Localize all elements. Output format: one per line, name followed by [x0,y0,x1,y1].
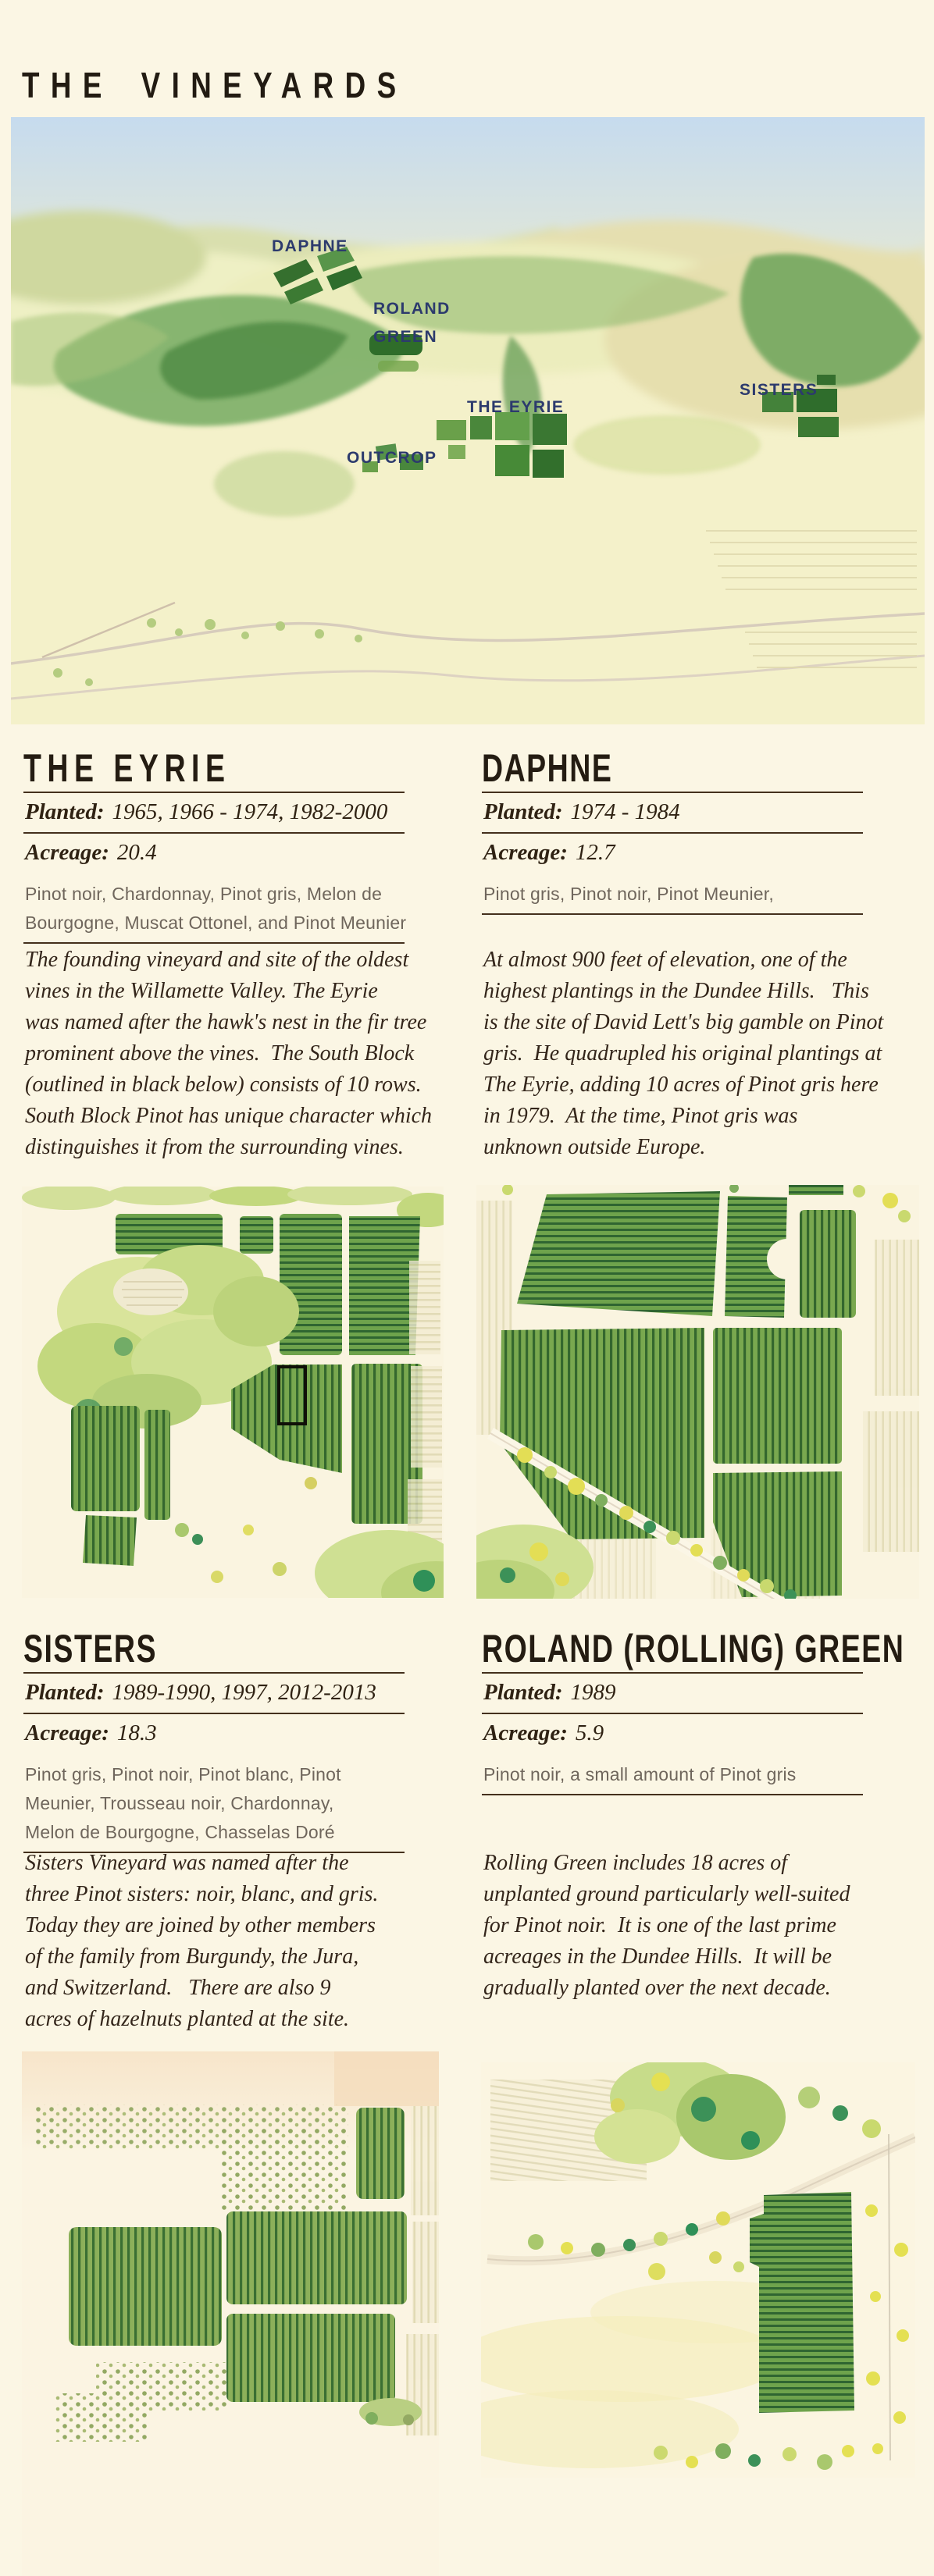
acreage-label: Acreage: [483,1720,568,1745]
rule [482,913,863,915]
planted-label: Planted: [25,1680,105,1705]
right-edge-orchard [408,1261,442,1557]
map-label-outcrop: OUTCROP [347,449,437,467]
section-sisters: SISTERS Planted:1989-1990, 1997, 2012-20… [23,1628,405,2065]
rule [482,1794,863,1795]
acreage-value: 20.4 [117,840,157,865]
planted-row: Planted:1989 [482,1674,863,1713]
acreage-label: Acreage: [483,840,568,865]
planted-value: 1965, 1966 - 1974, 1982-2000 [112,799,388,824]
section-title: SISTERS [23,1628,309,1672]
map-label-roland-line2: GREEN [373,328,437,346]
planted-value: 1989-1990, 1997, 2012-2013 [112,1680,376,1705]
section-description: Sisters Vineyard was named after the thr… [25,1848,378,2035]
planted-label: Planted: [483,799,563,824]
rule [23,942,405,944]
page-title: THE VINEYARDS [22,67,408,103]
varietals-list: Pinot gris, Pinot noir, Pinot Meunier, [482,873,863,913]
acreage-label: Acreage: [25,840,109,865]
planted-row: Planted:1965, 1966 - 1974, 1982-2000 [23,793,405,832]
planted-row: Planted:1974 - 1984 [482,793,863,832]
map-label-daphne: DAPHNE [272,237,348,255]
peach-corner [334,2051,439,2106]
section-roland-green: ROLAND (ROLLING) GREEN Planted:1989 Acre… [482,1628,863,2065]
aerial-photo-sisters [22,2051,439,2576]
planted-label: Planted: [483,1680,563,1705]
aerial-photo-daphne [476,1185,919,1599]
acreage-row: Acreage:5.9 [482,1714,863,1753]
section-title: ROLAND (ROLLING) GREEN [482,1628,768,1672]
planted-label: Planted: [25,799,105,824]
vine-block [750,2192,854,2413]
acreage-value: 18.3 [117,1720,157,1745]
section-title: DAPHNE [482,748,768,792]
acreage-row: Acreage:18.3 [23,1714,405,1753]
brochure-page: THE VINEYARDS [0,0,934,2576]
map-label-roland-line1: ROLAND [373,300,451,318]
acreage-row: Acreage:20.4 [23,834,405,873]
planted-value: 1974 - 1984 [571,799,680,824]
acreage-value: 5.9 [576,1720,604,1745]
map-label-sisters: SISTERS [740,381,818,399]
watercolor-hills-illustration: DAPHNE ROLAND GREEN THE EYRIE OUTCROP SI… [11,117,925,724]
acreage-value: 12.7 [576,840,615,865]
vineyards-overview-map: DAPHNE ROLAND GREEN THE EYRIE OUTCROP SI… [11,117,925,724]
section-title: THE EYRIE [23,748,309,792]
aerial-photo-roland-green [481,2062,915,2478]
acreage-label: Acreage: [25,1720,109,1745]
section-description: The founding vineyard and site of the ol… [25,945,432,1163]
section-description: At almost 900 feet of elevation, one of … [483,945,883,1163]
varietals-list: Pinot noir, a small amount of Pinot gris [482,1753,863,1794]
aerial-photo-the-eyrie [22,1187,444,1598]
acreage-row: Acreage:12.7 [482,834,863,873]
section-description: Rolling Green includes 18 acres of unpla… [483,1848,850,2004]
map-label-the-eyrie: THE EYRIE [467,398,564,416]
south-block-outline [279,1367,305,1424]
section-the-eyrie: THE EYRIE Planted:1965, 1966 - 1974, 198… [23,748,405,1185]
varietals-list: Pinot noir, Chardonnay, Pinot gris, Melo… [23,873,405,942]
bottom-right-canopy [359,2398,422,2426]
section-daphne: DAPHNE Planted:1974 - 1984 Acreage:12.7 … [482,748,863,1185]
varietals-list: Pinot gris, Pinot noir, Pinot blanc, Pin… [23,1753,405,1852]
planted-row: Planted:1989-1990, 1997, 2012-2013 [23,1674,405,1713]
planted-value: 1989 [571,1680,616,1705]
